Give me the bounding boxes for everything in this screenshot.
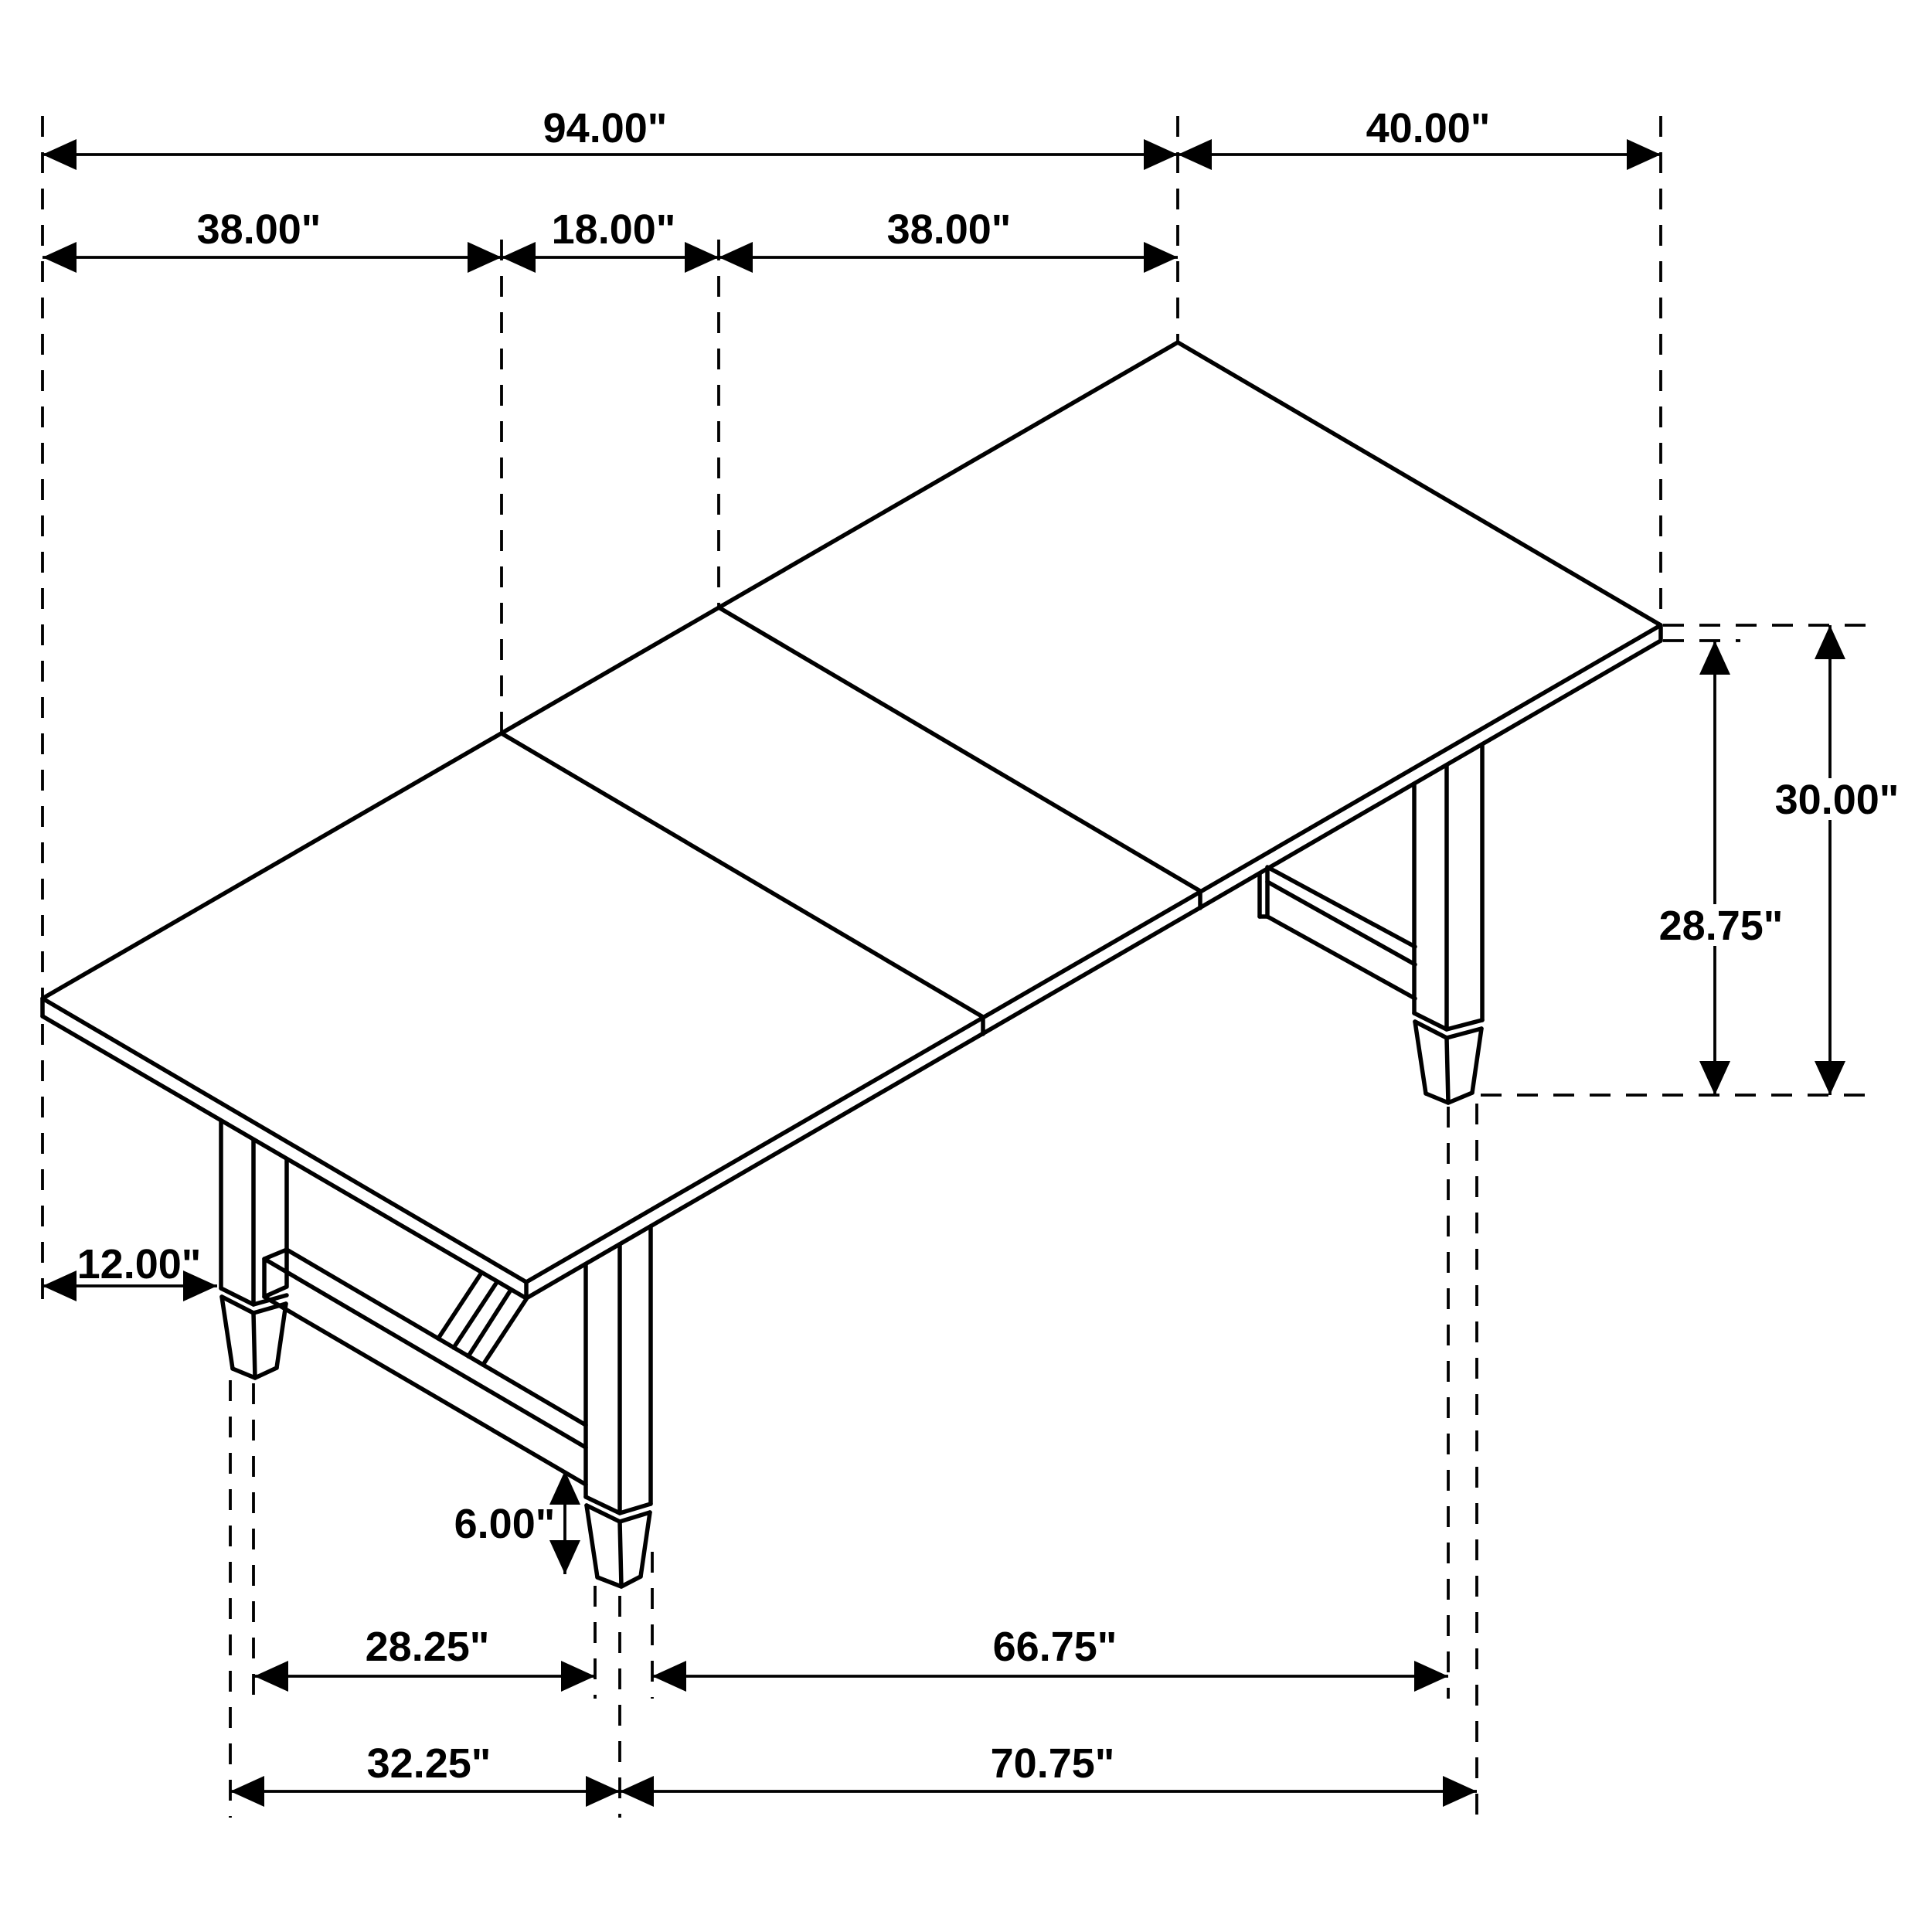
svg-text:18.00": 18.00" — [552, 206, 676, 253]
svg-text:40.00": 40.00" — [1366, 105, 1491, 151]
svg-text:70.75": 70.75" — [991, 1740, 1115, 1787]
svg-text:38.00": 38.00" — [887, 206, 1012, 253]
svg-text:30.00": 30.00" — [1775, 777, 1900, 823]
svg-text:28.25": 28.25" — [366, 1624, 490, 1670]
svg-text:28.75": 28.75" — [1659, 903, 1784, 949]
svg-text:66.75": 66.75" — [993, 1624, 1117, 1670]
svg-text:12.00": 12.00" — [77, 1241, 202, 1287]
svg-text:38.00": 38.00" — [197, 206, 321, 253]
svg-text:32.25": 32.25" — [367, 1740, 492, 1787]
svg-text:6.00": 6.00" — [454, 1501, 556, 1547]
svg-text:94.00": 94.00" — [543, 105, 668, 151]
